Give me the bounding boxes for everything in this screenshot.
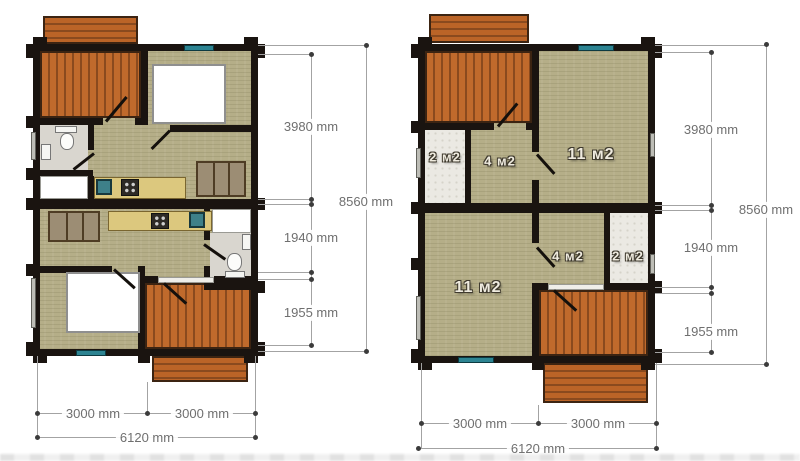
room-label: 4 м2: [484, 154, 516, 169]
window-slit: [650, 254, 655, 274]
window-slit: [416, 296, 421, 340]
dimension-line: [37, 356, 38, 437]
dimension-dot: [709, 208, 714, 213]
bed: [152, 64, 226, 124]
room-label: 4 м2: [552, 249, 584, 264]
dimension-line: [655, 364, 767, 365]
bathroom-sink: [242, 234, 251, 250]
dimension-label: 3980 mm: [280, 119, 342, 135]
dimension-label: 3000 mm: [62, 406, 124, 422]
dimension-dot: [364, 349, 369, 354]
toilet-tank: [55, 126, 77, 133]
toilet-bowl: [60, 133, 74, 150]
wall: [604, 213, 610, 283]
dimension-line: [255, 356, 256, 437]
dimension-line: [258, 345, 313, 346]
wall: [465, 130, 471, 203]
stove: [121, 179, 139, 196]
log-corner-nub: [33, 356, 47, 363]
wall: [88, 118, 94, 150]
wall: [532, 180, 539, 203]
wall: [170, 125, 258, 132]
log-corner-nub: [138, 356, 150, 363]
wall: [135, 118, 148, 125]
dimension-dot: [764, 42, 769, 47]
dimension-label: 3000 mm: [567, 416, 629, 432]
dimension-dot: [253, 435, 258, 440]
dimension-line: [711, 52, 712, 352]
deck-terrace: [539, 290, 648, 356]
toilet-tank: [225, 271, 245, 278]
dimension-dot: [654, 446, 659, 451]
log-corner-nub: [26, 44, 33, 58]
dimension-line: [421, 363, 422, 448]
kitchen-sink: [96, 179, 112, 195]
dimension-line: [655, 287, 712, 288]
dimension-dot: [709, 285, 714, 290]
dimension-label: 1955 mm: [280, 305, 342, 321]
dimension-label: 1955 mm: [680, 324, 742, 340]
dimension-label: 3980 mm: [680, 122, 742, 138]
window-slit: [650, 133, 655, 157]
log-corner-nub: [26, 198, 33, 210]
log-corner-nub: [411, 258, 418, 270]
dimension-dot: [253, 411, 258, 416]
dimension-dot: [419, 421, 424, 426]
log-corner-nub: [411, 44, 418, 58]
dimension-line: [655, 52, 712, 53]
wall: [604, 283, 655, 290]
bathroom-floor: [425, 130, 465, 203]
log-corner-nub: [411, 202, 418, 214]
window: [184, 45, 214, 51]
stove: [151, 213, 169, 229]
dimension-dot: [364, 43, 369, 48]
dimension-dot: [309, 277, 314, 282]
dimension-line: [655, 205, 712, 206]
deck-terrace: [145, 283, 251, 349]
log-corner-nub: [411, 121, 418, 133]
room-label: 11 м2: [567, 146, 614, 164]
dimension-label: 8560 mm: [335, 194, 397, 210]
room-label: 11 м2: [454, 279, 501, 297]
dimension-line: [258, 272, 313, 273]
wall: [141, 44, 148, 125]
log-corner-nub: [418, 37, 432, 44]
wall: [532, 213, 539, 243]
dimension-line: [258, 199, 313, 200]
dimension-line: [656, 363, 657, 448]
wardrobe: [196, 161, 246, 197]
dimension-dot: [536, 421, 541, 426]
log-corner-nub: [33, 37, 47, 44]
dimension-label: 1940 mm: [680, 240, 742, 256]
log-corner-nub: [26, 116, 33, 128]
log-corner-nub: [258, 281, 265, 293]
dimension-line: [655, 293, 712, 294]
room-label: 2 м2: [429, 150, 461, 165]
dimension-dot: [309, 343, 314, 348]
log-corner-nub: [26, 342, 33, 356]
bathroom-sink: [41, 144, 51, 160]
dimension-dot: [309, 202, 314, 207]
wall: [532, 44, 539, 130]
dimension-dot: [35, 435, 40, 440]
wall: [204, 283, 258, 290]
dimension-dot: [416, 446, 421, 451]
wall: [145, 276, 158, 283]
wall: [526, 123, 539, 130]
floorplan-canvas: 3980 mm 1940 mm 1955 mm 8560 mm 3000 mm …: [0, 0, 800, 461]
log-corner-nub: [655, 44, 662, 58]
dimension-line: [147, 382, 148, 413]
door-threshold: [158, 277, 214, 283]
dimension-label: 3000 mm: [171, 406, 233, 422]
room-label: 2 м2: [612, 249, 644, 264]
dimension-line: [655, 352, 712, 353]
deck-terrace: [425, 51, 532, 123]
deck-steps: [543, 363, 648, 403]
dimension-line: [655, 210, 712, 211]
dimension-dot: [709, 350, 714, 355]
dimension-dot: [309, 270, 314, 275]
wall: [418, 123, 494, 130]
window-slit: [416, 148, 421, 178]
dimension-dot: [709, 50, 714, 55]
dimension-dot: [35, 411, 40, 416]
shower-floor: [212, 209, 251, 233]
wall: [532, 283, 539, 363]
dimension-line: [258, 54, 313, 55]
dimension-line: [258, 279, 313, 280]
dimension-dot: [764, 362, 769, 367]
wall: [418, 203, 652, 213]
dimension-line: [258, 204, 313, 205]
dimension-dot: [654, 421, 659, 426]
kitchen-sink: [189, 212, 205, 228]
wall: [33, 349, 258, 356]
wardrobe: [48, 211, 100, 242]
dimension-label: 6120 mm: [116, 430, 178, 446]
log-corner-nub: [26, 168, 33, 180]
wall: [33, 199, 258, 209]
cropped-edge-artifact: [0, 454, 800, 461]
window: [578, 45, 614, 51]
dimension-line: [258, 351, 368, 352]
wall: [532, 130, 539, 152]
window-slit: [31, 132, 36, 160]
wall: [33, 170, 93, 176]
log-corner-nub: [655, 202, 662, 214]
log-corner-nub: [641, 37, 655, 44]
dimension-line: [655, 45, 767, 46]
window-slit: [31, 278, 36, 328]
dimension-label: 3000 mm: [449, 416, 511, 432]
log-corner-nub: [258, 44, 265, 58]
dimension-label: 1940 mm: [280, 230, 342, 246]
deck-steps: [152, 356, 248, 382]
log-corner-nub: [244, 37, 258, 44]
log-corner-nub: [411, 349, 418, 363]
dimension-label: 8560 mm: [735, 202, 797, 218]
closet-floor: [40, 176, 88, 199]
window: [76, 350, 106, 356]
log-corner-nub: [641, 363, 655, 370]
dimension-dot: [145, 411, 150, 416]
door-threshold: [548, 284, 604, 290]
deck-steps: [43, 16, 138, 44]
dimension-dot: [309, 52, 314, 57]
dimension-dot: [709, 291, 714, 296]
log-corner-nub: [532, 363, 544, 370]
window: [458, 357, 494, 363]
toilet-bowl: [227, 253, 242, 271]
deck-steps: [429, 14, 529, 43]
dimension-line: [258, 45, 368, 46]
log-corner-nub: [26, 264, 33, 276]
deck-terrace: [40, 51, 141, 118]
